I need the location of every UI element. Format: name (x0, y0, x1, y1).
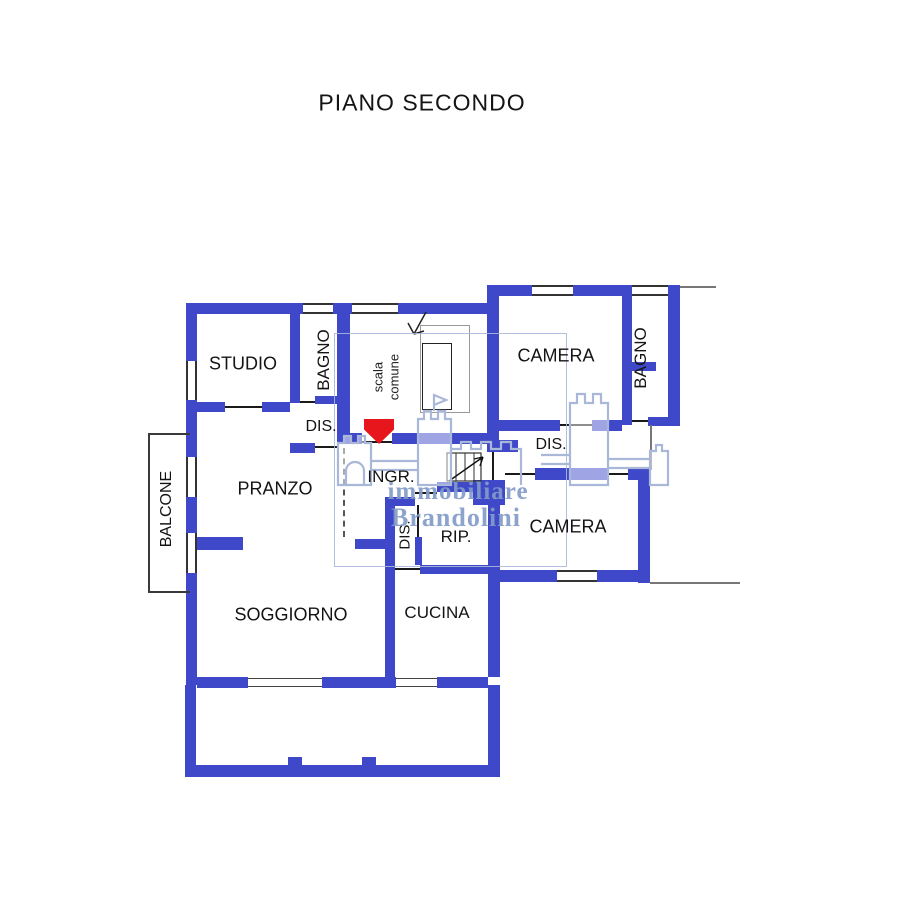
terrace-wall (185, 685, 196, 777)
wall (197, 677, 248, 688)
page-title: PIANO SECONDO (318, 90, 525, 117)
wall (322, 677, 396, 688)
wall (487, 285, 532, 296)
wall (186, 303, 303, 314)
terrace-wall (185, 765, 500, 777)
door-threshold (300, 401, 315, 403)
terrace-wall-tick (288, 757, 302, 765)
wall (262, 402, 290, 412)
window (557, 570, 597, 582)
room-label-soggiorno: SOGGIORNO (234, 605, 347, 626)
window (632, 285, 668, 296)
window (532, 285, 573, 296)
room-label-dis-1: DIS. (305, 418, 336, 436)
wall (597, 570, 650, 582)
wall (573, 285, 632, 296)
scala-label-line1: scala (370, 354, 386, 400)
room-label-camera-1: CAMERA (517, 346, 594, 367)
room-label-pranzo: PRANZO (237, 479, 312, 500)
wall (499, 570, 557, 582)
wall (197, 537, 243, 550)
room-label-camera-2: CAMERA (529, 517, 606, 538)
room-label-dis-2: DIS. (535, 436, 566, 454)
adjoining-line (650, 582, 740, 584)
wall (290, 314, 300, 403)
terrace-wall-tick (362, 757, 376, 765)
room-label-rip: RIP. (441, 527, 472, 547)
room-label-ingresso: INGR. (367, 467, 414, 487)
wall (186, 303, 197, 361)
room-label-bagno-1: BAGNO (314, 329, 334, 390)
window (186, 361, 197, 400)
adjoining-line (680, 286, 716, 288)
wall (197, 402, 225, 412)
wall (638, 468, 650, 583)
terrace-wall (488, 685, 500, 777)
room-label-studio: STUDIO (209, 354, 277, 375)
door-threshold (395, 568, 420, 570)
room-label-bagno-2: BAGNO (631, 327, 651, 388)
scala-label-line2: comune (386, 354, 402, 400)
room-label-balcone: BALCONE (158, 471, 176, 547)
room-label-scala-comune: scala comune (370, 354, 401, 400)
window (303, 303, 333, 314)
window (352, 303, 398, 314)
wall (437, 677, 488, 688)
door-threshold (225, 406, 262, 408)
balcony-door-sill (248, 678, 322, 687)
wall (290, 443, 315, 453)
room-label-dis-3: DIS. (397, 520, 414, 549)
balcony-door-sill (396, 678, 437, 687)
floor-plan-page: PIANO SECONDO (0, 0, 900, 903)
room-label-cucina: CUCINA (404, 603, 469, 623)
